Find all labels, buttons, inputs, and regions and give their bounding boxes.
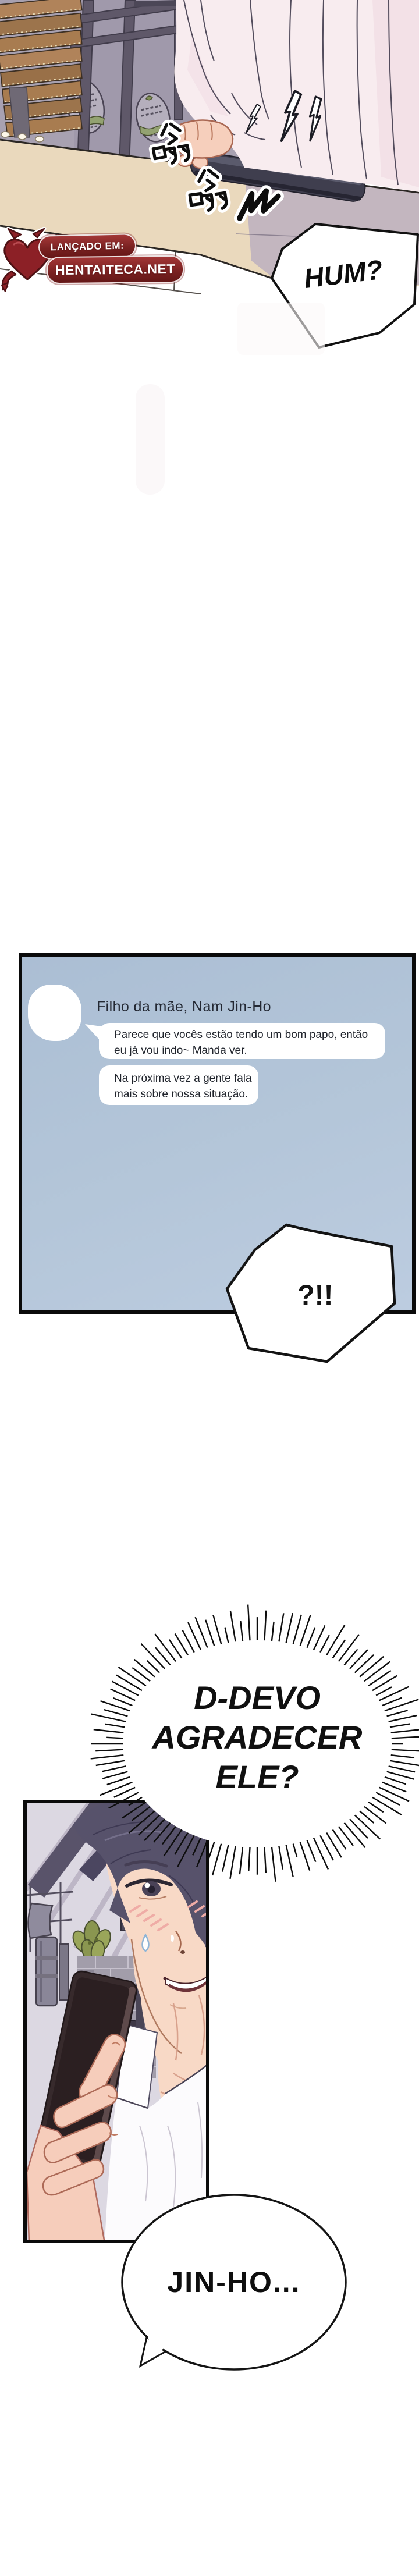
shout-burst-bubble: D-DEVO AGRADECER ELE? xyxy=(77,1593,419,1895)
chat-message-line: Parece que vocês estão tendo um bom papo… xyxy=(114,1027,385,1043)
watermark-site-name: HENTAITECA.NET xyxy=(47,255,184,284)
chat-sender-name: Filho da mãe, Nam Jin-Ho xyxy=(97,999,271,1015)
avatar xyxy=(28,985,81,1041)
chat-message-line: eu já vou indo~ Manda ver. xyxy=(114,1043,385,1058)
surprise-speech-bubble: ?!! xyxy=(221,1216,407,1373)
top-scene-panel: HUM? xyxy=(0,0,419,355)
jinho-text: JIN-HO... xyxy=(167,2266,300,2298)
webtoon-page: HUM? LANÇADO EM: HENTAITECA.NET Filho da… xyxy=(0,0,419,2576)
shout-text-line: D-DEVO xyxy=(194,1679,321,1716)
chat-message-line: mais sobre nossa situação. xyxy=(114,1086,258,1102)
chat-message: Parece que vocês estão tendo um bom papo… xyxy=(99,1023,385,1059)
shout-text-line: AGRADECER xyxy=(151,1719,363,1756)
chat-message-line: Na próxima vez a gente fala xyxy=(114,1071,258,1086)
jinho-speech-bubble: JIN-HO... xyxy=(116,2191,355,2377)
site-watermark: LANÇADO EM: HENTAITECA.NET xyxy=(0,227,192,292)
ghost-mark xyxy=(136,384,165,495)
surprise-text: ?!! xyxy=(297,1280,333,1311)
shout-text-line: ELE? xyxy=(215,1758,299,1795)
chat-message: Na próxima vez a gente fala mais sobre n… xyxy=(99,1065,258,1105)
ghost-mark xyxy=(237,303,325,355)
